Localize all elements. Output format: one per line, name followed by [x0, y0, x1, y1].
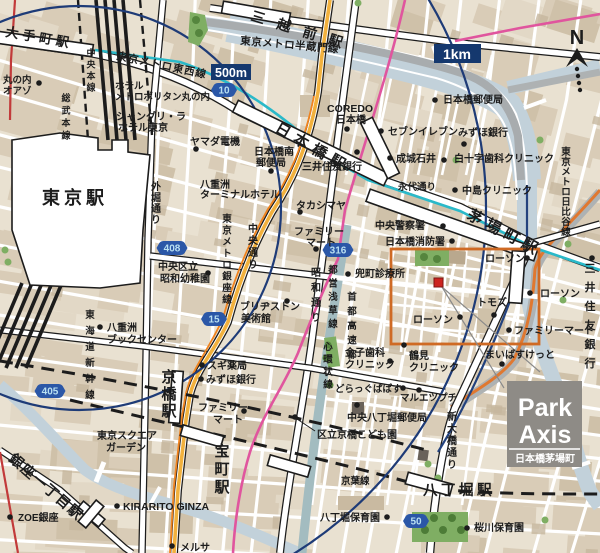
- svg-text:メ: メ: [222, 237, 232, 248]
- svg-text:速: 速: [347, 335, 357, 347]
- svg-text:15: 15: [208, 315, 220, 326]
- svg-text:ローソン: ローソン: [540, 289, 580, 300]
- svg-text:ブックセンター: ブックセンター: [107, 333, 177, 346]
- svg-text:幹: 幹: [85, 373, 95, 385]
- svg-text:道: 道: [85, 341, 95, 353]
- svg-text:京葉線: 京葉線: [341, 475, 370, 487]
- svg-text:行: 行: [584, 356, 596, 370]
- svg-text:東京スクエア: 東京スクエア: [97, 429, 157, 442]
- svg-text:中: 中: [248, 222, 258, 235]
- svg-text:ターミナルホテル: ターミナルホテル: [200, 189, 280, 201]
- svg-text:中央警察署: 中央警察署: [375, 219, 425, 232]
- svg-text:500m: 500m: [215, 66, 247, 80]
- svg-text:八丁堀保育園: 八丁堀保育園: [319, 511, 380, 524]
- svg-text:浅: 浅: [328, 291, 338, 303]
- svg-text:総: 総: [61, 92, 70, 103]
- svg-text:高: 高: [347, 320, 357, 332]
- svg-text:線: 線: [222, 294, 232, 306]
- svg-text:り: り: [447, 459, 457, 471]
- svg-text:線: 線: [323, 379, 333, 391]
- svg-text:Axis: Axis: [519, 421, 572, 449]
- svg-text:新: 新: [85, 357, 95, 369]
- svg-text:都: 都: [327, 264, 338, 276]
- svg-text:り: り: [311, 312, 321, 324]
- svg-text:状: 状: [323, 366, 333, 378]
- svg-text:座: 座: [221, 282, 232, 294]
- svg-text:ロ: ロ: [222, 260, 232, 271]
- svg-text:銀: 銀: [222, 271, 232, 283]
- svg-text:鶴見: 鶴見: [409, 349, 429, 362]
- svg-text:ホテル: ホテル: [115, 81, 144, 92]
- svg-text:井: 井: [585, 280, 596, 294]
- svg-text:セブンイレブン: セブンイレブン: [388, 125, 458, 138]
- svg-text:どらっぐぱぱす: どらっぐぱぱす: [335, 383, 402, 395]
- svg-text:マート: マート: [213, 414, 243, 426]
- svg-text:マート: マート: [306, 237, 336, 249]
- svg-text:環: 環: [323, 354, 333, 366]
- svg-text:ローソン: ローソン: [485, 254, 525, 265]
- svg-text:町: 町: [214, 461, 229, 478]
- svg-text:美術館: 美術館: [241, 312, 271, 325]
- svg-text:50: 50: [410, 517, 422, 528]
- svg-text:通: 通: [447, 447, 457, 459]
- svg-text:10: 10: [218, 86, 230, 97]
- svg-text:央: 央: [86, 59, 96, 70]
- svg-text:兜町診療所: 兜町診療所: [355, 267, 405, 280]
- svg-text:首: 首: [347, 291, 357, 303]
- svg-text:スギ薬局: スギ薬局: [207, 359, 247, 372]
- svg-text:ファミリー: ファミリー: [198, 402, 248, 414]
- svg-text:マルエツプチ: マルエツプチ: [400, 392, 457, 404]
- svg-text:堀: 堀: [151, 191, 161, 204]
- svg-text:ヤマダ電機: ヤマダ電機: [190, 135, 240, 148]
- svg-text:昭: 昭: [311, 267, 321, 279]
- svg-text:三井住友銀行: 三井住友銀行: [302, 160, 362, 173]
- svg-text:KIRARITO GINZA: KIRARITO GINZA: [123, 501, 210, 513]
- svg-text:みずほ銀行: みずほ銀行: [206, 373, 256, 386]
- svg-text:みずほ銀行: みずほ銀行: [458, 126, 508, 139]
- svg-text:通: 通: [311, 297, 321, 309]
- svg-text:通: 通: [151, 203, 161, 215]
- svg-text:東: 東: [84, 309, 95, 321]
- svg-text:宝: 宝: [214, 442, 229, 460]
- svg-text:昭和幼稚園: 昭和幼稚園: [160, 272, 210, 285]
- svg-text:日本橋消防署: 日本橋消防署: [385, 235, 445, 248]
- svg-text:和: 和: [310, 281, 321, 294]
- svg-text:ZOE銀座: ZOE銀座: [18, 511, 59, 524]
- svg-text:心: 心: [323, 342, 333, 353]
- svg-text:り: り: [151, 214, 161, 226]
- svg-text:八重洲: 八重洲: [106, 321, 137, 334]
- svg-text:日本橋郵便局: 日本橋郵便局: [443, 93, 503, 106]
- svg-text:メルサ: メルサ: [180, 542, 210, 553]
- svg-text:大: 大: [447, 422, 457, 435]
- svg-text:線: 線: [61, 130, 70, 141]
- svg-text:り: り: [248, 259, 258, 271]
- svg-text:京: 京: [222, 225, 232, 237]
- svg-text:シャングリ・ラ: シャングリ・ラ: [116, 110, 186, 123]
- svg-text:線: 線: [328, 318, 338, 330]
- svg-text:白十字歯科クリニック: 白十字歯科クリニック: [454, 152, 554, 165]
- svg-text:ト: ト: [222, 249, 232, 260]
- svg-text:オアゾ: オアゾ: [3, 85, 32, 97]
- svg-text:N: N: [570, 27, 584, 49]
- svg-text:ブリヂストン: ブリヂストン: [240, 300, 300, 313]
- svg-text:トモズ: トモズ: [477, 296, 507, 309]
- svg-text:区立京橋こども園: 区立京橋こども園: [317, 428, 397, 441]
- svg-text:Park: Park: [518, 394, 572, 422]
- svg-text:ホテル東京: ホテル東京: [118, 121, 168, 134]
- svg-text:都: 都: [346, 306, 357, 318]
- svg-text:ファミリーマート: ファミリーマート: [514, 325, 594, 337]
- svg-text:本: 本: [61, 117, 71, 128]
- svg-text:中央区立: 中央区立: [158, 260, 198, 273]
- svg-text:三: 三: [585, 262, 596, 275]
- svg-text:タカシマヤ: タカシマヤ: [296, 200, 346, 212]
- svg-text:線: 線: [85, 389, 95, 401]
- svg-text:都: 都: [346, 349, 357, 361]
- svg-text:央: 央: [248, 234, 259, 247]
- svg-text:東京駅: 東京駅: [42, 187, 108, 208]
- svg-text:永代通り: 永代通り: [397, 181, 436, 193]
- svg-text:COREDO: COREDO: [327, 103, 373, 115]
- svg-text:外: 外: [150, 180, 161, 193]
- svg-text:日本橋茅場町: 日本橋茅場町: [515, 452, 575, 465]
- svg-text:駅: 駅: [160, 403, 177, 420]
- svg-text:新: 新: [447, 410, 457, 423]
- svg-text:桜川保育園: 桜川保育園: [474, 521, 524, 534]
- svg-text:1km: 1km: [443, 46, 471, 62]
- svg-text:中央八丁堀郵便局: 中央八丁堀郵便局: [347, 411, 427, 424]
- svg-text:まいばすけっと: まいばすけっと: [485, 348, 555, 361]
- svg-text:橋: 橋: [161, 385, 177, 403]
- svg-text:ファミリー: ファミリー: [294, 226, 344, 238]
- svg-text:408: 408: [164, 244, 181, 255]
- svg-text:本: 本: [86, 70, 96, 81]
- svg-text:日本橋: 日本橋: [336, 113, 367, 126]
- svg-text:丸の内: 丸の内: [2, 74, 32, 86]
- svg-text:橋: 橋: [447, 434, 458, 447]
- svg-text:銀: 銀: [585, 337, 596, 351]
- svg-text:日本橋南: 日本橋南: [254, 145, 294, 158]
- svg-text:武: 武: [61, 105, 70, 116]
- svg-text:クリニック: クリニック: [409, 362, 459, 374]
- svg-text:友: 友: [585, 318, 596, 332]
- svg-text:住: 住: [585, 299, 596, 313]
- svg-text:成城石井: 成城石井: [396, 152, 436, 165]
- svg-text:405: 405: [42, 387, 59, 398]
- svg-text:駅: 駅: [213, 479, 230, 496]
- svg-text:ローソン: ローソン: [413, 315, 453, 326]
- svg-text:郵便局: 郵便局: [256, 156, 286, 169]
- svg-text:線: 線: [561, 226, 571, 238]
- svg-text:メトロポリタン丸の内: メトロポリタン丸の内: [115, 91, 210, 103]
- svg-text:中: 中: [86, 47, 95, 58]
- svg-text:中島クリニック: 中島クリニック: [462, 184, 532, 197]
- svg-text:ガーデン: ガーデン: [106, 441, 146, 454]
- svg-text:線: 線: [86, 82, 95, 93]
- svg-text:京: 京: [161, 368, 176, 386]
- svg-text:通: 通: [248, 247, 258, 259]
- svg-text:海: 海: [85, 325, 95, 337]
- svg-text:営: 営: [328, 278, 338, 290]
- svg-text:八丁堀駅: 八丁堀駅: [422, 482, 495, 499]
- svg-text:草: 草: [328, 305, 338, 317]
- svg-text:東: 東: [221, 213, 232, 225]
